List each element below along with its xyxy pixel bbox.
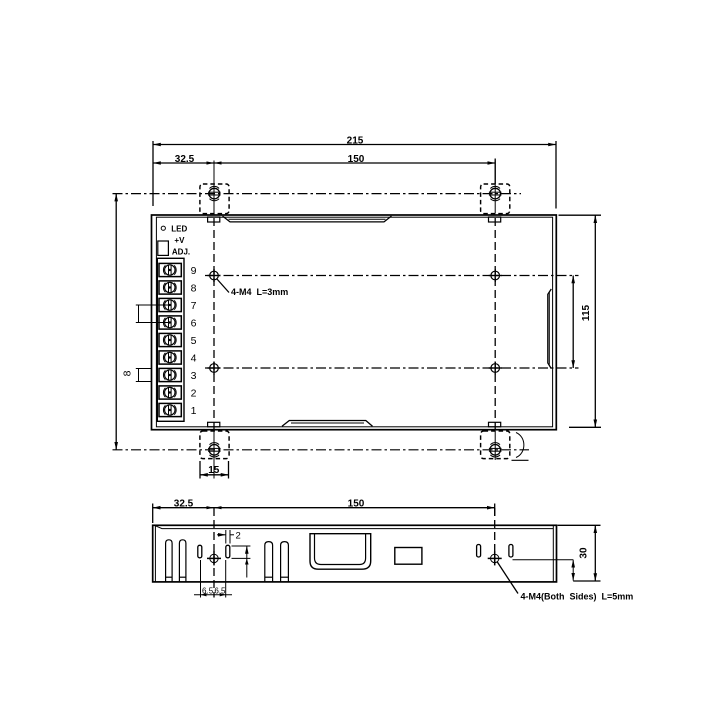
svg-text:115: 115 [581, 304, 592, 321]
svg-text:6.5: 6.5 [214, 586, 226, 595]
svg-text:4-M4(Both Sides) L=5mm: 4-M4(Both Sides) L=5mm [521, 592, 634, 602]
svg-text:2: 2 [191, 387, 197, 399]
svg-text:2: 2 [236, 530, 241, 541]
svg-text:4: 4 [191, 352, 197, 364]
svg-text:1: 1 [191, 405, 197, 417]
svg-text:7: 7 [191, 300, 197, 312]
svg-text:8: 8 [191, 282, 197, 294]
svg-text:+V: +V [174, 236, 185, 245]
svg-text:32.5: 32.5 [174, 499, 194, 510]
svg-text:15: 15 [208, 465, 220, 476]
svg-text:215: 215 [347, 136, 364, 147]
svg-text:9: 9 [191, 265, 197, 277]
svg-text:LED: LED [171, 224, 187, 233]
svg-text:6: 6 [191, 317, 197, 329]
svg-text:150: 150 [348, 499, 365, 510]
svg-text:5: 5 [191, 335, 197, 347]
svg-text:ADJ.: ADJ. [172, 248, 190, 257]
svg-text:6.5: 6.5 [202, 586, 214, 595]
svg-text:8: 8 [122, 370, 134, 376]
svg-text:30: 30 [579, 547, 590, 559]
svg-text:32.5: 32.5 [175, 154, 195, 165]
svg-text:4-M4 L=3mm: 4-M4 L=3mm [231, 287, 288, 297]
svg-text:3: 3 [191, 370, 197, 382]
svg-text:150: 150 [348, 154, 365, 165]
